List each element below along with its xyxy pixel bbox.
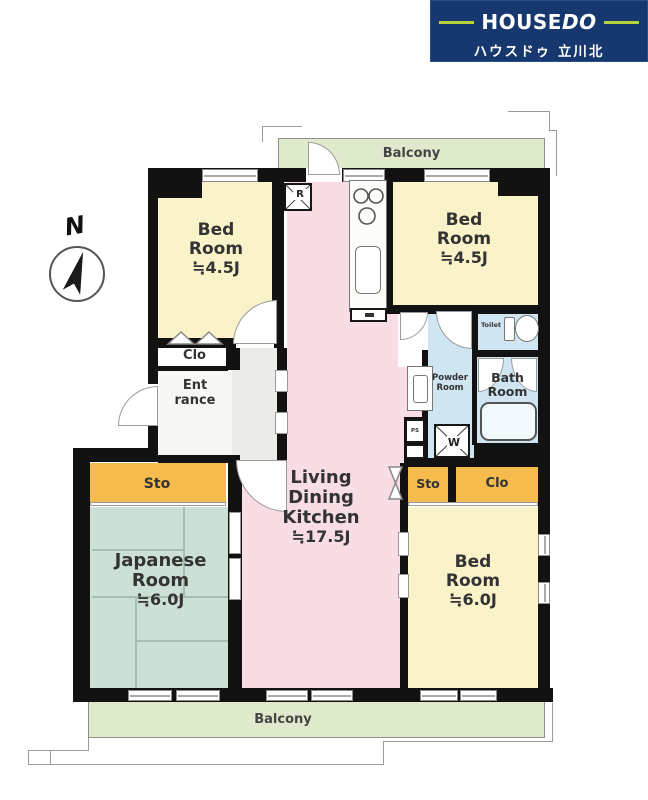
wall-segment (73, 448, 158, 462)
washer-label: W (447, 436, 461, 449)
room-label-line: Bed (408, 553, 538, 572)
tatami-line (135, 640, 233, 642)
entrance-label: Ent rance (158, 379, 232, 408)
window (176, 690, 220, 701)
accent-line-left (439, 21, 474, 24)
sliding-door (275, 412, 288, 434)
brand-house-text: HOUSE (481, 10, 562, 34)
room-label-line: Room (88, 571, 233, 591)
window (538, 582, 550, 604)
tatami-line (135, 598, 137, 688)
bedroom-ne-label: Bed Room ≒4.5J (390, 211, 538, 267)
footprint-outline (50, 750, 89, 751)
window (266, 690, 308, 701)
storage-e-label: Sto (408, 467, 448, 501)
wall-segment (158, 366, 228, 371)
wall-segment (474, 443, 540, 458)
balcony-top-label: Balcony (278, 147, 545, 162)
window (420, 690, 458, 701)
window (538, 534, 550, 556)
meter-box (405, 444, 425, 459)
room-label-line: Room (477, 385, 538, 399)
wall-segment (474, 350, 540, 357)
branch-name: ハウスドゥ 立川北 (431, 40, 647, 60)
window (424, 169, 490, 182)
balcony-bottom-label: Balcony (88, 713, 478, 728)
footprint-outline (549, 111, 550, 131)
room-label-line: Bath (477, 371, 538, 385)
compass-needle-icon (63, 250, 91, 296)
powder-room-label: Powder Room (426, 374, 474, 393)
footprint-outline (51, 764, 383, 765)
room-size-label: ≒6.0J (408, 591, 538, 609)
room-label-line: Kitchen (240, 508, 402, 528)
room-size-label: ≒4.5J (390, 249, 538, 267)
ldk-label: Living Dining Kitchen ≒17.5J (240, 468, 402, 546)
footprint-outline (28, 764, 52, 765)
room-label-line: Ent (158, 379, 232, 394)
room-size-label: ≒4.5J (158, 259, 274, 277)
footprint-outline (28, 750, 29, 765)
pipe-space-label: PS (407, 428, 423, 434)
japanese-room-label: Japanese Room ≒6.0J (88, 551, 233, 609)
footprint-outline (383, 741, 553, 742)
room-label-line: Room (426, 384, 474, 394)
washer-box: W (434, 424, 470, 458)
footprint-outline (88, 738, 89, 751)
window (460, 690, 497, 701)
toilet-label: Toilet (477, 322, 505, 329)
room-label-line: Room (408, 572, 538, 591)
footprint-outline (262, 126, 263, 142)
toilet-bowl-icon (515, 315, 539, 342)
footprint-outline (383, 741, 384, 765)
accordion-door (166, 329, 224, 346)
room-size-label: ≒17.5J (240, 528, 402, 546)
room-label-line: Room (158, 240, 274, 259)
sliding-door (408, 502, 538, 506)
room-label-line: Living (240, 468, 402, 488)
sliding-door (275, 370, 288, 392)
kitchen-sink (355, 246, 381, 294)
toilet-tank-icon (504, 317, 515, 341)
wall-segment (277, 348, 287, 462)
floor-plan-canvas: HOUSEDO ハウスドゥ 立川北 (0, 0, 648, 800)
wall-segment (158, 455, 240, 463)
footprint-outline (508, 111, 550, 112)
closet-e-label: Clo (456, 467, 538, 501)
wall-segment (448, 463, 456, 505)
room-label-line: Bed (390, 211, 538, 230)
bath-room-label: Bath Room (477, 371, 538, 399)
stove-icon (352, 186, 384, 232)
footprint-outline (28, 750, 50, 751)
footprint-outline (556, 130, 557, 176)
room-label-line: Bed (158, 221, 274, 240)
room-label-line: rance (158, 394, 232, 409)
window (128, 690, 172, 701)
closet-nw-label: Clo (163, 346, 226, 366)
room-label-line: Japanese (88, 551, 233, 571)
window (311, 690, 353, 701)
window (202, 169, 258, 182)
storage-w-label: Sto (88, 467, 226, 501)
room-label-line: Dining (240, 488, 402, 508)
room-size-label: ≒6.0J (88, 591, 233, 609)
bedroom-nw-label: Bed Room ≒4.5J (158, 221, 274, 277)
room-label-line: Room (390, 230, 538, 249)
compass-north-label: N (58, 211, 92, 243)
sliding-door (90, 502, 226, 506)
kitchen-end-cabinet (350, 308, 387, 322)
brand-logo: HOUSEDO (481, 10, 596, 34)
brand-header: HOUSEDO ハウスドゥ 立川北 (430, 0, 648, 62)
brand-row: HOUSEDO (431, 10, 647, 34)
footprint-outline (50, 750, 51, 765)
bathtub-icon (480, 402, 537, 441)
refrigerator-box: R (284, 183, 312, 211)
brand-do-text: DO (562, 10, 597, 34)
footprint-outline (262, 126, 302, 127)
footprint-outline (552, 703, 553, 742)
bedroom-se-label: Bed Room ≒6.0J (408, 553, 538, 609)
accent-line-right (604, 21, 639, 24)
refrigerator-label: R (293, 189, 307, 200)
entrance-door-arc (118, 386, 158, 426)
wall-segment (538, 168, 550, 702)
pipe-space-box: PS (405, 419, 425, 443)
